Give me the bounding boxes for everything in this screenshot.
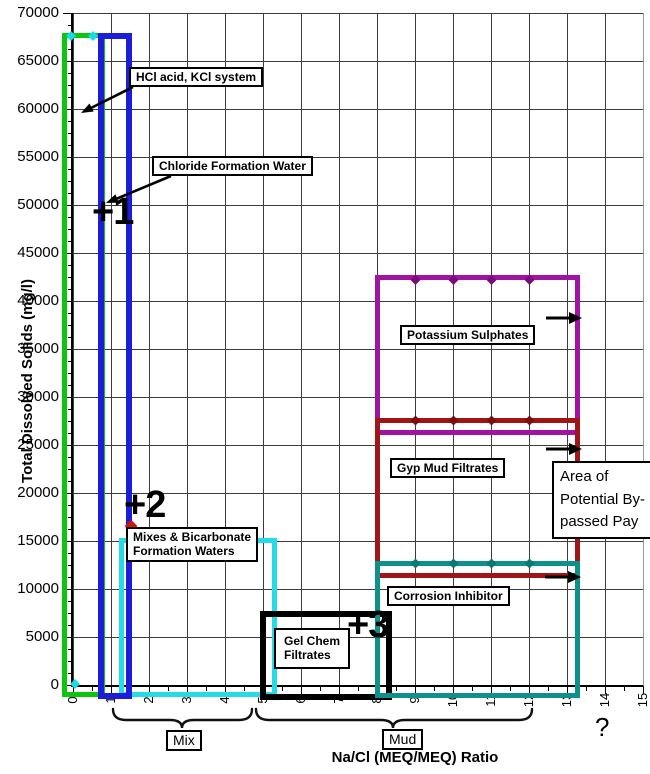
y-tick-55000: 55000 [0, 149, 59, 165]
y-tick-20000: 20000 [0, 485, 59, 501]
y-tick-65000: 65000 [0, 53, 59, 69]
annotation-plus3: +3 [347, 606, 388, 644]
y-tick-70000: 70000 [0, 5, 59, 21]
y-tick-50000: 50000 [0, 197, 59, 213]
label-gel-line2: Filtrates [284, 648, 340, 662]
x-tick-14: 14 [598, 685, 612, 715]
y-tick-45000: 45000 [0, 245, 59, 261]
label-mix: Mix [166, 730, 202, 751]
y-tick-30000: 30000 [0, 389, 59, 405]
annotation-plus1: +1 [92, 193, 133, 231]
y-tick-0: 0 [0, 677, 59, 693]
region-chloride-formation [98, 33, 132, 699]
label-mixes-bicarbonate: Mixes & Bicarbonate Formation Waters [126, 527, 258, 562]
y-tick-60000: 60000 [0, 101, 59, 117]
y-tick-10000: 10000 [0, 581, 59, 597]
label-mixes-line2: Formation Waters [133, 544, 251, 558]
x-tick-15: 15 [636, 685, 650, 715]
area-note-line2: Potential By- [560, 489, 645, 512]
area-note-line1: Area of [560, 466, 645, 489]
y-tick-5000: 5000 [0, 629, 59, 645]
area-note-line3: passed Pay [560, 511, 645, 534]
y-tick-40000: 40000 [0, 293, 59, 309]
label-area-of-potential-bypassed-pay: Area of Potential By- passed Pay [552, 461, 650, 539]
label-gyp-mud-filtrates: Gyp Mud Filtrates [390, 458, 505, 478]
label-hcl-kcl-system: HCl acid, KCl system [129, 67, 263, 87]
label-corrosion-inhibitor: Corrosion Inhibitor [387, 586, 510, 606]
y-tick-35000: 35000 [0, 341, 59, 357]
region-potassium-sulphates [375, 275, 580, 435]
label-mud: Mud [382, 729, 423, 750]
y-tick-25000: 25000 [0, 437, 59, 453]
annotation-plus2: +2 [124, 486, 165, 524]
label-gel-line1: Gel Chem [284, 634, 340, 648]
label-mixes-line1: Mixes & Bicarbonate [133, 530, 251, 544]
chart: Total Dissolved Solids (mg/l) Na/Cl (MEQ… [0, 0, 650, 774]
y-tick-15000: 15000 [0, 533, 59, 549]
region-corrosion-inhibitor [375, 561, 580, 698]
label-chloride-formation-water: Chloride Formation Water [152, 156, 313, 176]
question-mark: ? [595, 712, 609, 743]
region-mixes-bicarbonate [119, 538, 277, 697]
region-gyp-mud [375, 418, 580, 578]
x-axis-title: Na/Cl (MEQ/MEQ) Ratio [300, 749, 530, 766]
label-gel-chem-filtrates: Gel Chem Filtrates [274, 628, 350, 669]
label-potassium-sulphates: Potassium Sulphates [400, 325, 535, 345]
